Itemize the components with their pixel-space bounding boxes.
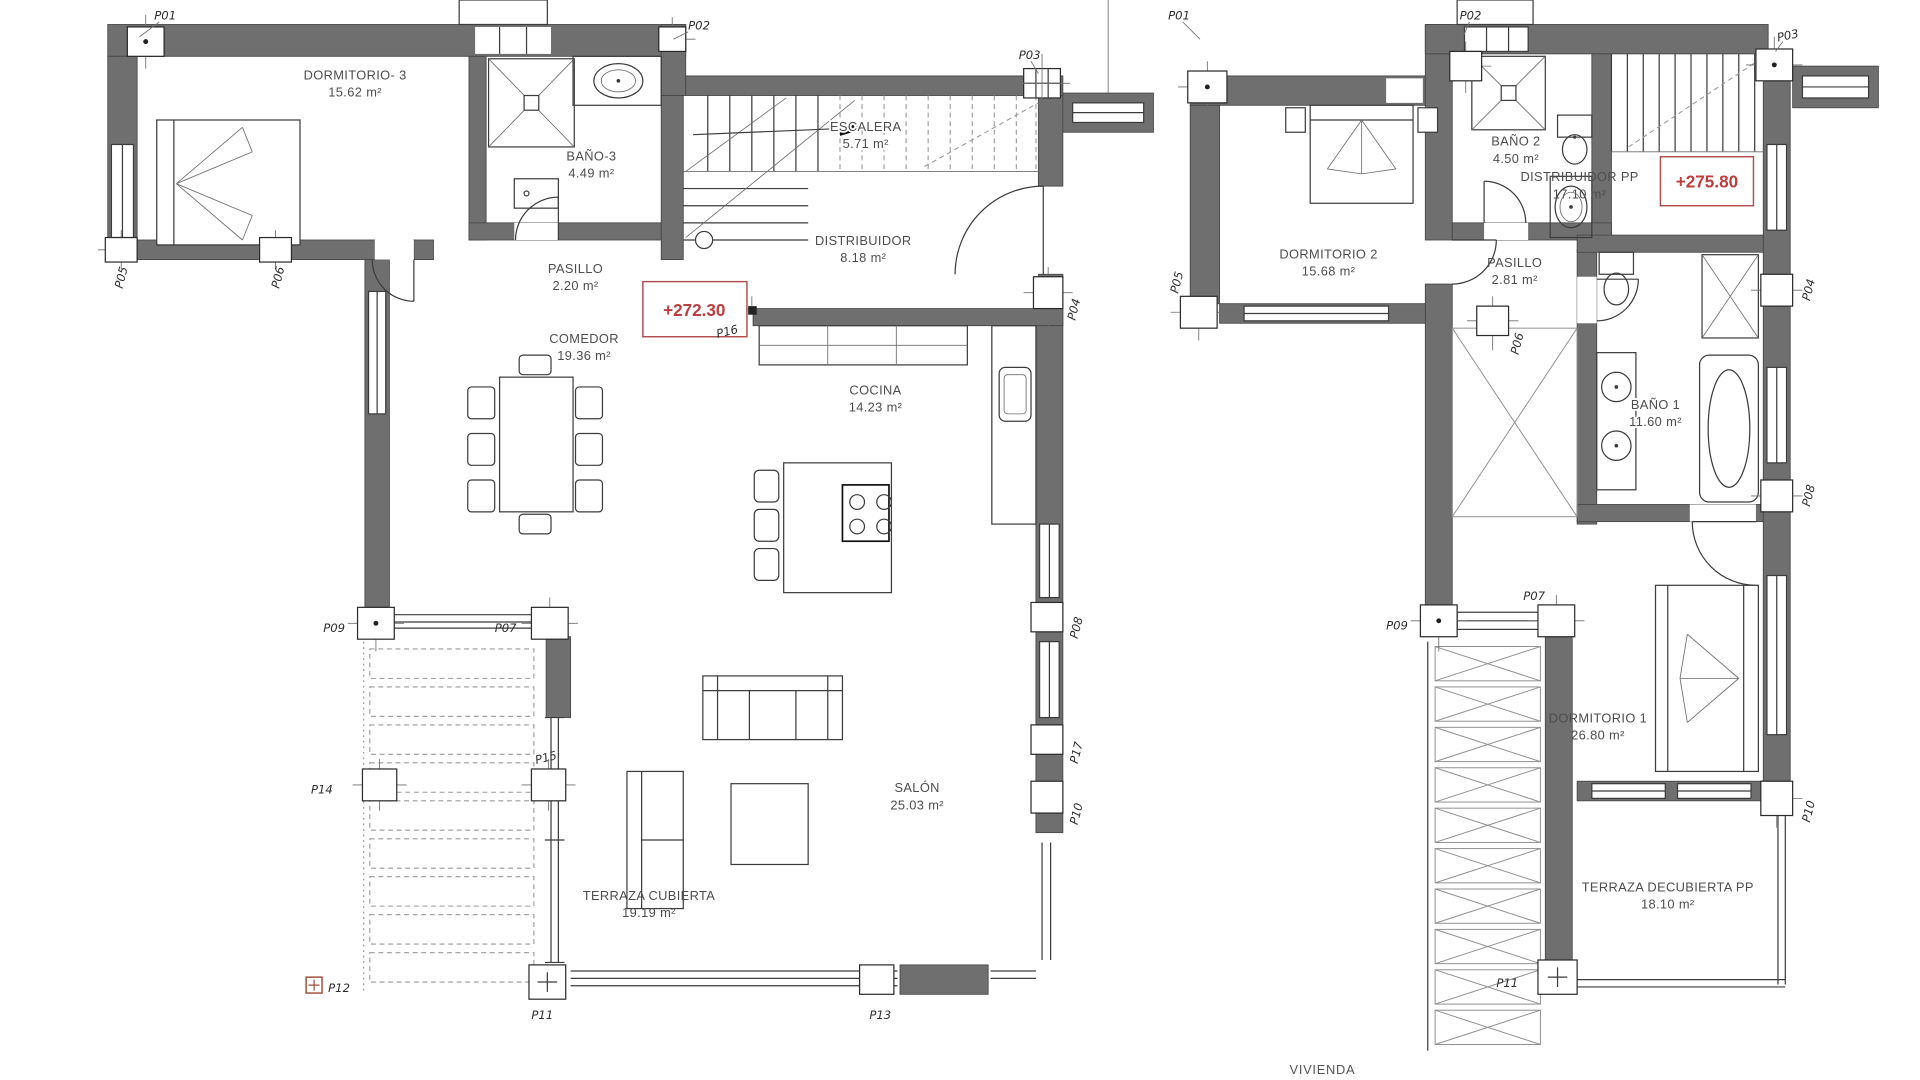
room-area-distribuidor: 8.18 m² xyxy=(840,250,886,265)
bed-dormitorio-3 xyxy=(157,120,300,245)
drawing-caption: VIVIENDA xyxy=(1290,1062,1356,1077)
kitchen-island xyxy=(754,463,891,593)
bed-dormitorio-1 xyxy=(1656,585,1759,771)
room-area-dormitorio-2: 15.68 m² xyxy=(1302,264,1356,279)
upper-level-marker: +275.80 xyxy=(1660,157,1753,206)
room-label-salon: SALÓN xyxy=(894,780,939,795)
room-area-bano-2: 4.50 m² xyxy=(1493,151,1539,166)
room-area-bano-1: 11.60 m² xyxy=(1629,414,1682,429)
pillar-label-p04-upper: P04 xyxy=(1799,277,1818,302)
room-area-salon: 25.03 m² xyxy=(890,797,944,812)
pillar-label-p06-ground: P06 xyxy=(269,265,288,290)
room-label-escalera: ESCALERA xyxy=(830,119,902,134)
terrace-pergola xyxy=(364,642,534,995)
room-label-bano-1: BAÑO 1 xyxy=(1631,397,1680,412)
pillar-label-p01-ground: P01 xyxy=(154,9,176,23)
room-label-bano-2: BAÑO 2 xyxy=(1491,134,1540,149)
room-label-dormitorio-2: DORMITORIO 2 xyxy=(1279,246,1377,261)
room-area-terraza-decubierta: 18.10 m² xyxy=(1641,897,1695,912)
upper-staircase xyxy=(1611,54,1763,152)
void-over-stairs xyxy=(1452,328,1577,517)
room-area-comedor: 19.36 m² xyxy=(557,348,611,363)
room-label-comedor: COMEDOR xyxy=(549,331,619,346)
pillar-label-p12-ground: P12 xyxy=(328,981,350,995)
upper-level-value: +275.80 xyxy=(1676,171,1738,191)
room-area-distribuidor-pp: 17.10 m² xyxy=(1553,186,1607,201)
room-label-distribuidor: DISTRIBUIDOR xyxy=(815,233,911,248)
room-label-terraza-decubierta: TERRAZA DECUBIERTA PP xyxy=(1582,879,1754,894)
pillar-label-p05-upper: P05 xyxy=(1167,270,1186,295)
pillar-label-p02-ground: P02 xyxy=(688,18,710,32)
pillar-label-p03-upper: P03 xyxy=(1776,26,1800,44)
pillar-label-p10-ground: P10 xyxy=(1067,801,1086,826)
dining-table xyxy=(468,355,603,534)
floor-plan-drawing: DORMITORIO- 3 15.62 m² BAÑO-3 4.49 m² ES… xyxy=(0,0,1920,1080)
bed-dormitorio-2 xyxy=(1286,105,1438,203)
pillar-label-p07-ground: P07 xyxy=(495,621,517,635)
pillar-label-p10-upper: P10 xyxy=(1799,799,1818,824)
room-label-pasillo-upper: PASILLO xyxy=(1487,255,1542,270)
room-label-cocina: COCINA xyxy=(849,382,901,397)
room-label-pasillo-ground: PASILLO xyxy=(548,261,603,276)
room-label-dormitorio-3: DORMITORIO- 3 xyxy=(304,68,407,83)
pillar-label-p09-ground: P09 xyxy=(323,621,345,635)
room-label-dormitorio-1: DORMITORIO 1 xyxy=(1549,710,1647,725)
room-label-distribuidor-pp: DISTRIBUIDOR PP xyxy=(1520,169,1638,184)
ground-level-value: +272.30 xyxy=(663,300,725,320)
pillar-label-p17-ground: P17 xyxy=(1067,740,1086,765)
pillar-label-p04-ground: P04 xyxy=(1064,297,1083,322)
room-area-cocina: 14.23 m² xyxy=(849,399,903,414)
pillar-label-p03-ground: P03 xyxy=(1019,48,1041,62)
room-area-bano-3: 4.49 m² xyxy=(568,166,614,181)
sofa xyxy=(703,676,843,740)
bathroom-3-fixtures xyxy=(489,56,662,208)
room-area-terraza-cubierta: 19.19 m² xyxy=(622,905,676,920)
coffee-table xyxy=(731,784,808,865)
exterior-stair-strip xyxy=(1428,642,1541,1051)
room-area-dormitorio-3: 15.62 m² xyxy=(328,85,382,100)
bathroom-1-fixtures xyxy=(1597,252,1759,502)
pillar-label-p14-ground: P14 xyxy=(311,782,333,796)
room-area-pasillo-upper: 2.81 m² xyxy=(1492,272,1538,287)
pillar-label-p15-ground: P15 xyxy=(534,748,559,767)
pillar-label-p02-upper: P02 xyxy=(1460,9,1482,23)
pillar-label-p05-ground: P05 xyxy=(112,265,131,290)
pillar-label-p11-upper: P11 xyxy=(1496,976,1518,990)
pillar-label-p13-ground: P13 xyxy=(869,1008,891,1022)
ground-floor-plan: DORMITORIO- 3 15.62 m² BAÑO-3 4.49 m² ES… xyxy=(98,0,1154,1022)
room-label-terraza-cubierta: TERRAZA CUBIERTA xyxy=(583,888,715,903)
pillar-label-p08-ground: P08 xyxy=(1067,615,1086,640)
pillar-label-p01-upper: P01 xyxy=(1168,9,1190,23)
room-area-escalera: 5.71 m² xyxy=(843,136,889,151)
pillar-label-p07-upper: P07 xyxy=(1523,589,1545,603)
pillar-label-p09-upper: P09 xyxy=(1386,618,1408,632)
upper-floor-plan: DORMITORIO 2 15.68 m² BAÑO 2 4.50 m² DIS… xyxy=(1167,0,1878,1051)
pillar-label-p11-ground: P11 xyxy=(531,1008,553,1022)
pillar-label-p08-upper: P08 xyxy=(1799,483,1818,508)
pillar-label-p06-upper: P06 xyxy=(1508,331,1527,356)
room-label-bano-3: BAÑO-3 xyxy=(566,148,616,163)
room-area-dormitorio-1: 26.80 m² xyxy=(1571,728,1625,743)
room-area-pasillo-ground: 2.20 m² xyxy=(552,278,598,293)
